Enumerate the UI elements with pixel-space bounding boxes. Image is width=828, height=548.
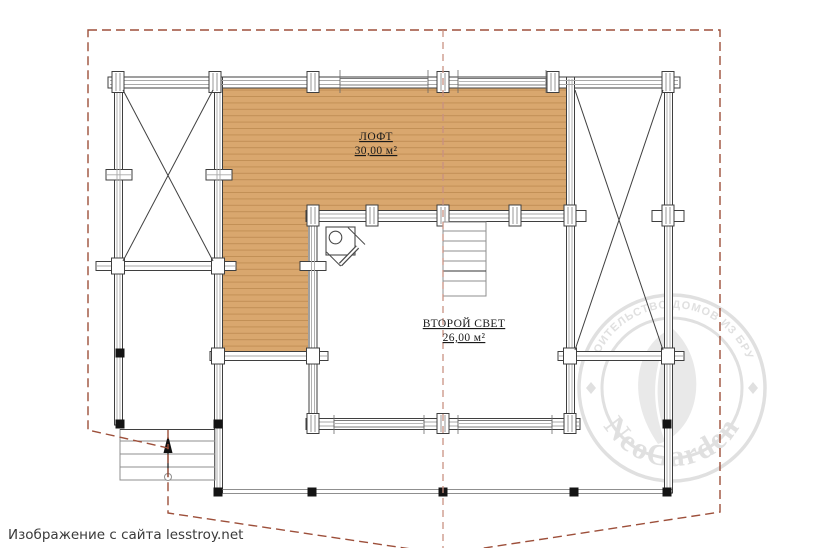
loft-area: 30,00 м² — [355, 145, 398, 157]
bay-right-wall — [665, 77, 673, 493]
house-right-wall — [567, 77, 575, 430]
stub-strip — [300, 262, 326, 271]
watermark-diamond-right — [748, 382, 758, 394]
second-light-area: 26,00 м² — [443, 332, 486, 344]
upper-stairs — [443, 222, 486, 296]
strip-right-wall — [309, 211, 317, 430]
source-caption: Изображение с сайта lesstroy.net — [8, 527, 243, 543]
floor-plan-image: СТРОИТЕЛЬСТВО ДОМОВ ИЗ БРУСА NeoGarden — [0, 0, 828, 548]
loft-left-wall — [215, 77, 223, 493]
left-outer-wall — [115, 77, 123, 425]
loft-label: ЛОФТ — [359, 131, 393, 143]
corner-fixtures — [326, 227, 365, 266]
watermark-diamond-left — [586, 382, 596, 394]
wash-unit-bowl — [329, 231, 342, 244]
second-light-label: ВТОРОЙ СВЕТ — [423, 316, 506, 330]
beam-crossing-posts — [112, 258, 675, 364]
